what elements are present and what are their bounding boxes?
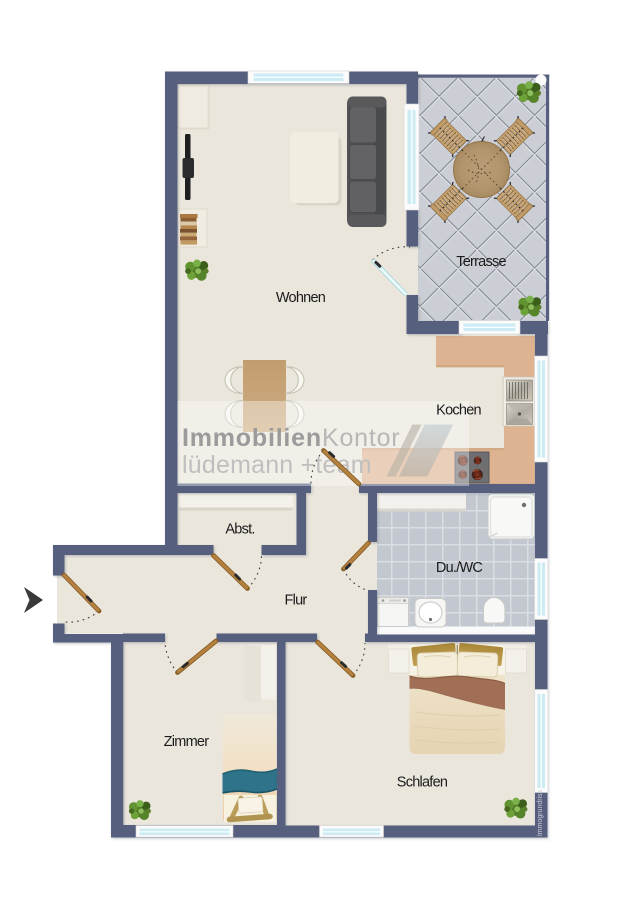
svg-text:ImmobilienKontor: ImmobilienKontor bbox=[182, 424, 400, 452]
svg-text:Terrasse: Terrasse bbox=[456, 254, 506, 270]
svg-text:Flur: Flur bbox=[285, 593, 308, 609]
svg-text:Zimmer: Zimmer bbox=[164, 734, 210, 750]
svg-text:Schlafen: Schlafen bbox=[397, 775, 448, 791]
svg-text:Abst.: Abst. bbox=[225, 522, 254, 538]
svg-text:Wohnen: Wohnen bbox=[276, 290, 326, 306]
svg-text:Immogrundriss: Immogrundriss bbox=[537, 789, 544, 836]
svg-text:Kochen: Kochen bbox=[436, 403, 481, 419]
svg-text:lüdemann +team: lüdemann +team bbox=[182, 451, 372, 479]
svg-text:Du./WC: Du./WC bbox=[436, 560, 483, 576]
